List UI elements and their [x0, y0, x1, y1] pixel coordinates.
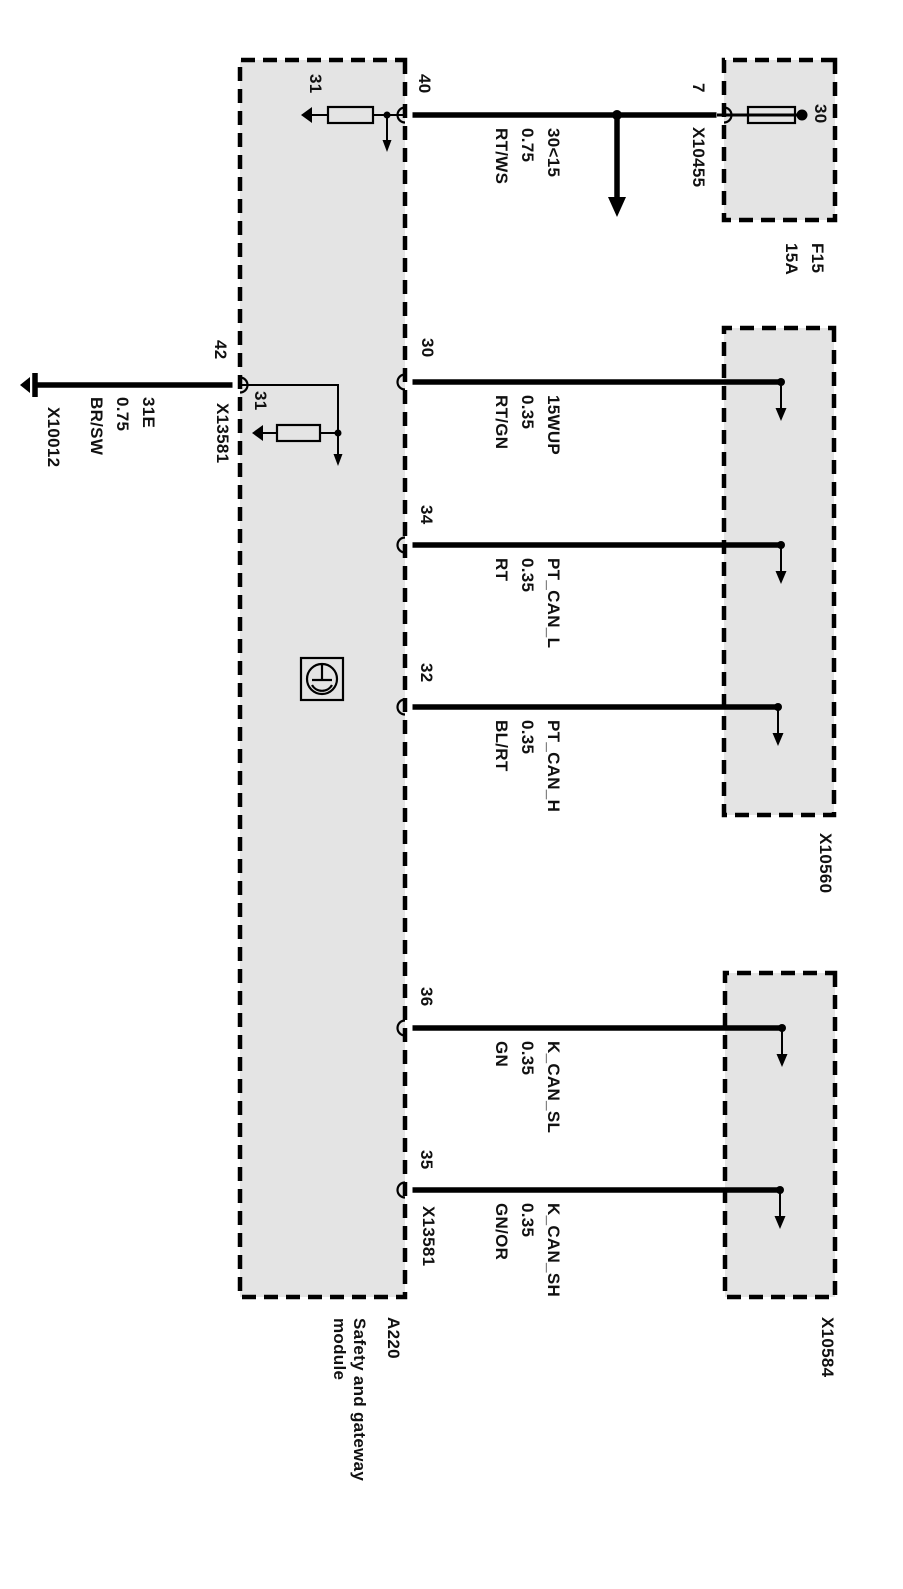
fuse-rating: 15A — [778, 243, 804, 275]
fuse-id: F15 — [804, 243, 830, 275]
connector-label-x10012: X10012 — [43, 407, 63, 467]
wire-cross-section: 0.35 — [514, 558, 540, 648]
connector-label-x10584: X10584 — [817, 1317, 837, 1377]
wire-cross-section: 0.35 — [514, 1203, 540, 1297]
wire-color: BR/SW — [83, 397, 109, 455]
connector-label-x10560: X10560 — [815, 833, 835, 893]
connector-label-x13581-top: X13581 — [418, 1206, 438, 1266]
fuse-pin-label: 7 — [688, 83, 708, 93]
module-name-line2: module — [329, 1318, 349, 1481]
ground-terminal-icon — [20, 377, 30, 393]
pin-label-35: 35 — [416, 1150, 436, 1170]
wire-signal: PT_CAN_L — [540, 558, 566, 648]
pin-label-34: 34 — [416, 505, 436, 525]
wire-color: RT/WS — [488, 128, 514, 184]
wire-signal: PT_CAN_H — [540, 720, 566, 812]
wire-label-k-can-sl: K_CAN_SL 0.35 GN — [488, 1041, 566, 1133]
connector-label-x13581-bottom: X13581 — [212, 403, 232, 463]
wire-cross-section: 0.35 — [514, 1041, 540, 1133]
wire-label-k-can-sh: K_CAN_SH 0.35 GN/OR — [488, 1203, 566, 1297]
pin-label-32: 32 — [416, 663, 436, 683]
pin-label-30: 30 — [417, 338, 437, 358]
wire-cross-section: 0.75 — [109, 397, 135, 455]
wire-signal: K_CAN_SH — [540, 1203, 566, 1297]
pin-label-36: 36 — [416, 987, 436, 1007]
diagram-rotated-canvas: 30 F15 15A 7 X10455 X10560 X10584 40 30 … — [0, 0, 903, 1589]
wire-signal: K_CAN_SL — [540, 1041, 566, 1133]
connector-box-x10584 — [725, 973, 835, 1297]
wire-color: RT — [488, 558, 514, 648]
wire-color: GN — [488, 1041, 514, 1133]
module-name-line1: Safety and gateway — [349, 1318, 369, 1481]
wire-signal: 31E — [135, 397, 161, 455]
continuation-arrow-icon — [608, 197, 626, 217]
wire-color: BL/RT — [488, 720, 514, 812]
wire-cross-section: 0.75 — [514, 128, 540, 184]
wire-cross-section: 0.35 — [514, 395, 540, 455]
wire-label-30-15: 30<15 0.75 RT/WS — [488, 128, 566, 184]
fuse-id-label: F15 15A — [778, 243, 830, 275]
fuse-terminal-label: 30 — [810, 104, 830, 124]
module-id-label: A220 — [383, 1317, 403, 1359]
wire-color: GN/OR — [488, 1203, 514, 1297]
wire-label-31e: 31E 0.75 BR/SW — [83, 397, 161, 455]
wire-signal: 30<15 — [540, 128, 566, 184]
wire-label-pt-can-h: PT_CAN_H 0.35 BL/RT — [488, 720, 566, 812]
connector-label-x10455: X10455 — [688, 127, 708, 187]
pin-label-42: 42 — [210, 340, 230, 360]
wire-label-pt-can-l: PT_CAN_L 0.35 RT — [488, 558, 566, 648]
pin-label-40: 40 — [414, 74, 434, 94]
module-name-label: Safety and gateway module — [329, 1318, 369, 1481]
wiring-diagram-canvas — [0, 0, 903, 1589]
wire-31e-brsw-ground — [20, 373, 233, 397]
internal-ground-label-a: 31 — [305, 74, 325, 94]
wire-cross-section: 0.35 — [514, 720, 540, 812]
fuse-carrier-box — [724, 60, 835, 220]
wiring-diagram-page: 30 F15 15A 7 X10455 X10560 X10584 40 30 … — [0, 0, 903, 1589]
wire-label-15wup: 15WUP 0.35 RT/GN — [488, 395, 566, 455]
internal-ground-label-b: 31 — [250, 391, 270, 411]
wire-color: RT/GN — [488, 395, 514, 455]
wire-signal: 15WUP — [540, 395, 566, 455]
